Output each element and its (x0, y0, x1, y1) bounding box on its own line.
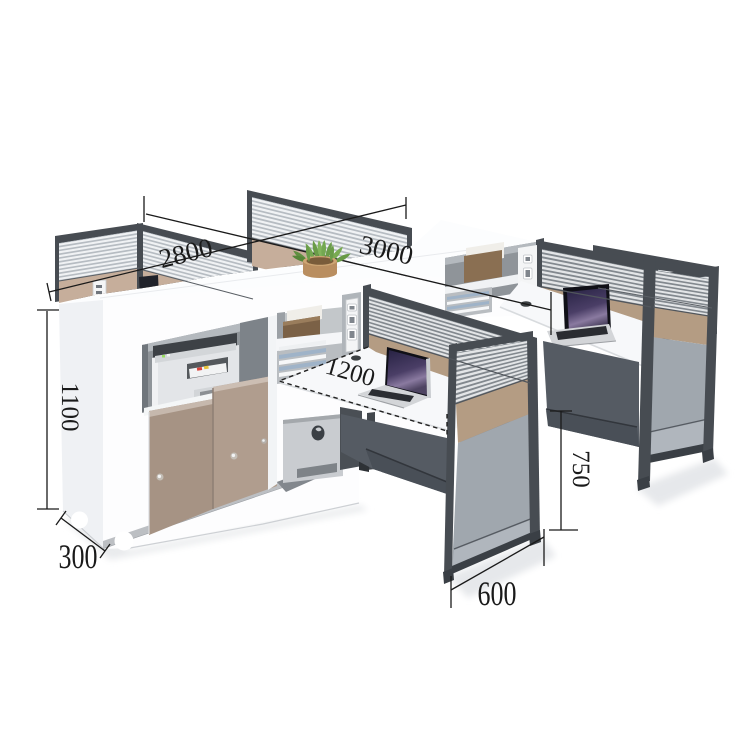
svg-text:1100: 1100 (56, 382, 83, 431)
svg-text:600: 600 (478, 575, 517, 613)
svg-text:750: 750 (567, 450, 594, 488)
svg-text:300: 300 (59, 538, 98, 576)
